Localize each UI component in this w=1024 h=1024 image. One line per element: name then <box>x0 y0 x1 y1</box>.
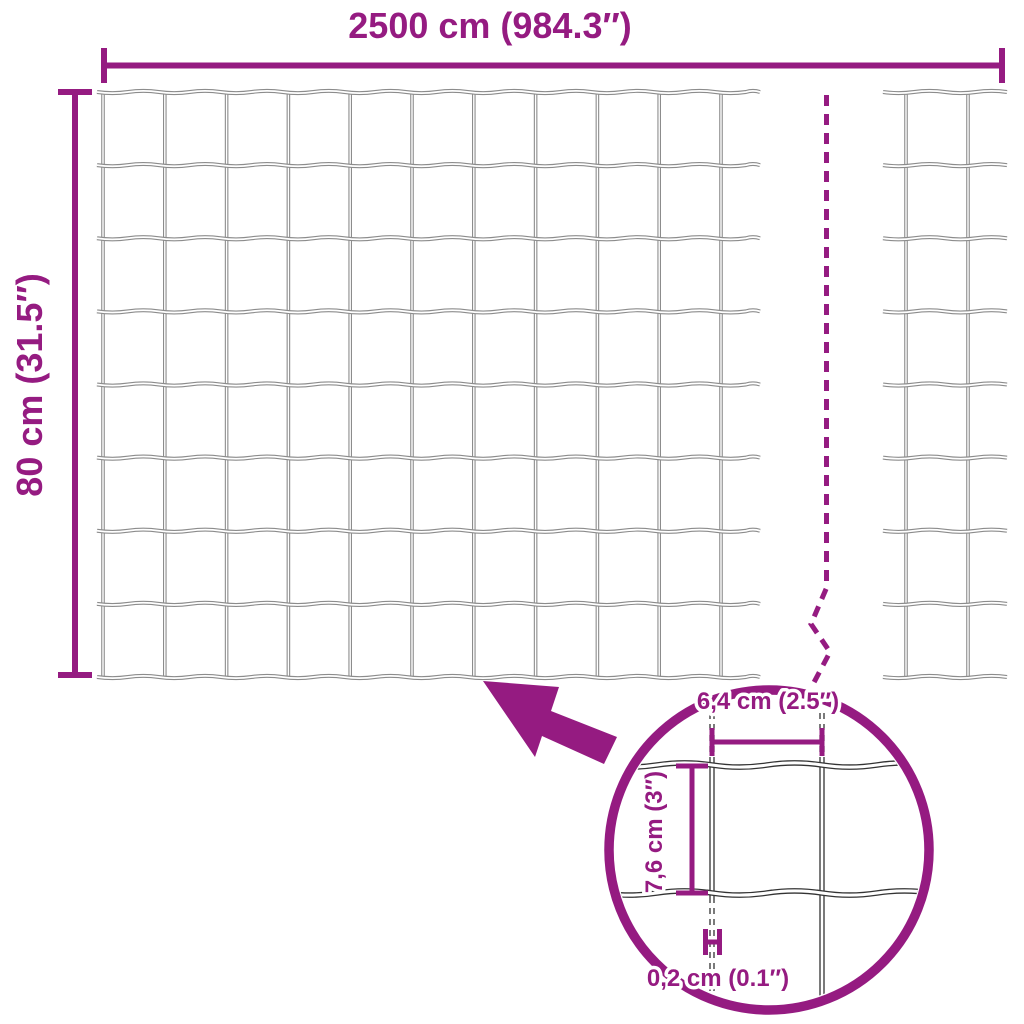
mesh-width-dimension: 6,4 cm (2.5″) <box>697 688 839 756</box>
continuation-break-line-icon <box>811 95 830 688</box>
height-dimension: 80 cm (31.5″) <box>9 92 92 675</box>
mesh-height-dimension: 7,6 cm (3″) <box>641 766 708 893</box>
mesh-height-dimension-label: 7,6 cm (3″) <box>641 771 668 893</box>
fence-dimension-diagram: 2500 cm (984.3″) 80 cm (31.5″) 6,4 cm (2… <box>0 0 1024 1024</box>
mesh-width-dimension-label: 6,4 cm (2.5″) <box>697 688 839 715</box>
diagram-canvas: 2500 cm (984.3″) 80 cm (31.5″) 6,4 cm (2… <box>0 0 1024 1024</box>
width-dimension: 2500 cm (984.3″) <box>104 5 1002 83</box>
wire-thickness-dimension: 0,2 cm (0.1″) <box>647 929 789 992</box>
wire-gauge-marker <box>706 929 720 955</box>
mesh-width-dimension-line <box>712 728 822 756</box>
height-dimension-line <box>58 92 92 675</box>
zoom-callout-arrow-icon <box>483 681 617 764</box>
mesh-grid-right <box>883 91 1007 678</box>
width-dimension-label: 2500 cm (984.3″) <box>348 5 631 46</box>
width-dimension-line <box>104 48 1002 83</box>
height-dimension-label: 80 cm (31.5″) <box>9 273 50 496</box>
mesh-grid-main <box>97 91 760 678</box>
mesh-height-dimension-line <box>676 766 708 893</box>
wire-thickness-label: 0,2 cm (0.1″) <box>647 965 789 992</box>
